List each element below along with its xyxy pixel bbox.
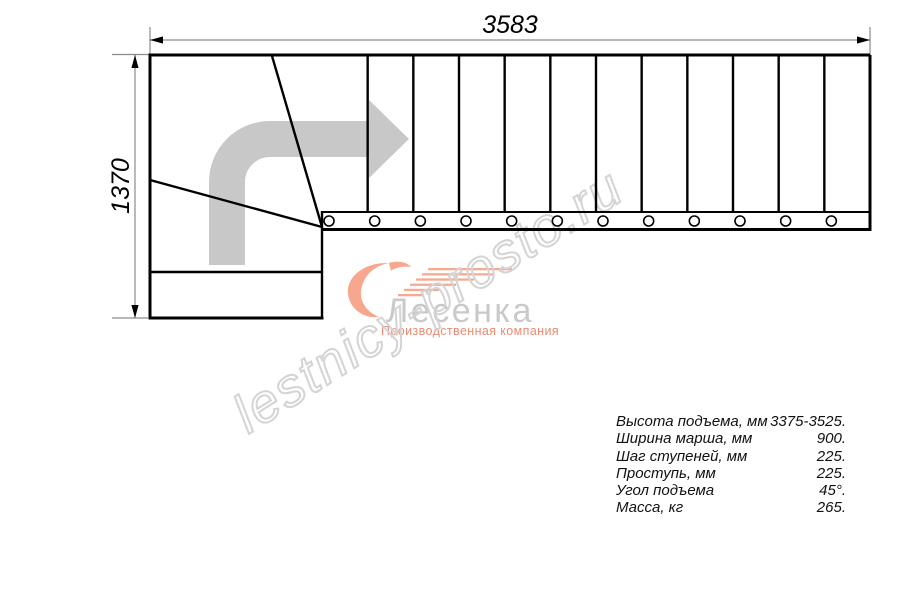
spec-row: Масса, кг265. xyxy=(616,499,846,516)
baluster-circle xyxy=(370,216,380,226)
dimension-height-label: 1370 xyxy=(107,136,133,236)
spec-value: 225. xyxy=(817,448,846,465)
spec-row: Шаг ступеней, мм225. xyxy=(616,448,846,465)
baluster-circle xyxy=(552,216,562,226)
direction-arrow xyxy=(227,100,409,265)
baluster-circle xyxy=(735,216,745,226)
spec-label: Угол подъема xyxy=(616,482,714,499)
spec-value: 900. xyxy=(817,430,846,447)
spec-row: Проступь, мм225. xyxy=(616,465,846,482)
spec-label: Масса, кг xyxy=(616,499,683,516)
baluster-circle xyxy=(461,216,471,226)
spec-label: Проступь, мм xyxy=(616,465,716,482)
baluster-circle xyxy=(781,216,791,226)
spec-label: Шаг ступеней, мм xyxy=(616,448,747,465)
spec-row: Ширина марша, мм900. xyxy=(616,430,846,447)
spec-label: Ширина марша, мм xyxy=(616,430,752,447)
tread-lines xyxy=(368,57,825,213)
baluster-circle xyxy=(415,216,425,226)
baluster-circles xyxy=(324,216,836,226)
spec-table: Высота подъема, мм3375-3525.Ширина марша… xyxy=(616,413,846,517)
spec-label: Высота подъема, мм xyxy=(616,413,768,430)
stair-outline xyxy=(149,54,871,320)
spec-row: Высота подъема, мм3375-3525. xyxy=(616,413,846,430)
baluster-circle xyxy=(598,216,608,226)
stair-blueprint-page: Лесенка Производственная компания lestni… xyxy=(0,0,900,600)
baluster-circle xyxy=(324,216,334,226)
baluster-circle xyxy=(644,216,654,226)
spec-value: 3375-3525. xyxy=(770,413,846,430)
spec-value: 45°. xyxy=(819,482,846,499)
baluster-circle xyxy=(689,216,699,226)
spec-value: 265. xyxy=(817,499,846,516)
baluster-circle xyxy=(826,216,836,226)
spec-row: Угол подъема45°. xyxy=(616,482,846,499)
spec-value: 225. xyxy=(817,465,846,482)
baluster-circle xyxy=(507,216,517,226)
dimension-width-label: 3583 xyxy=(400,11,620,40)
